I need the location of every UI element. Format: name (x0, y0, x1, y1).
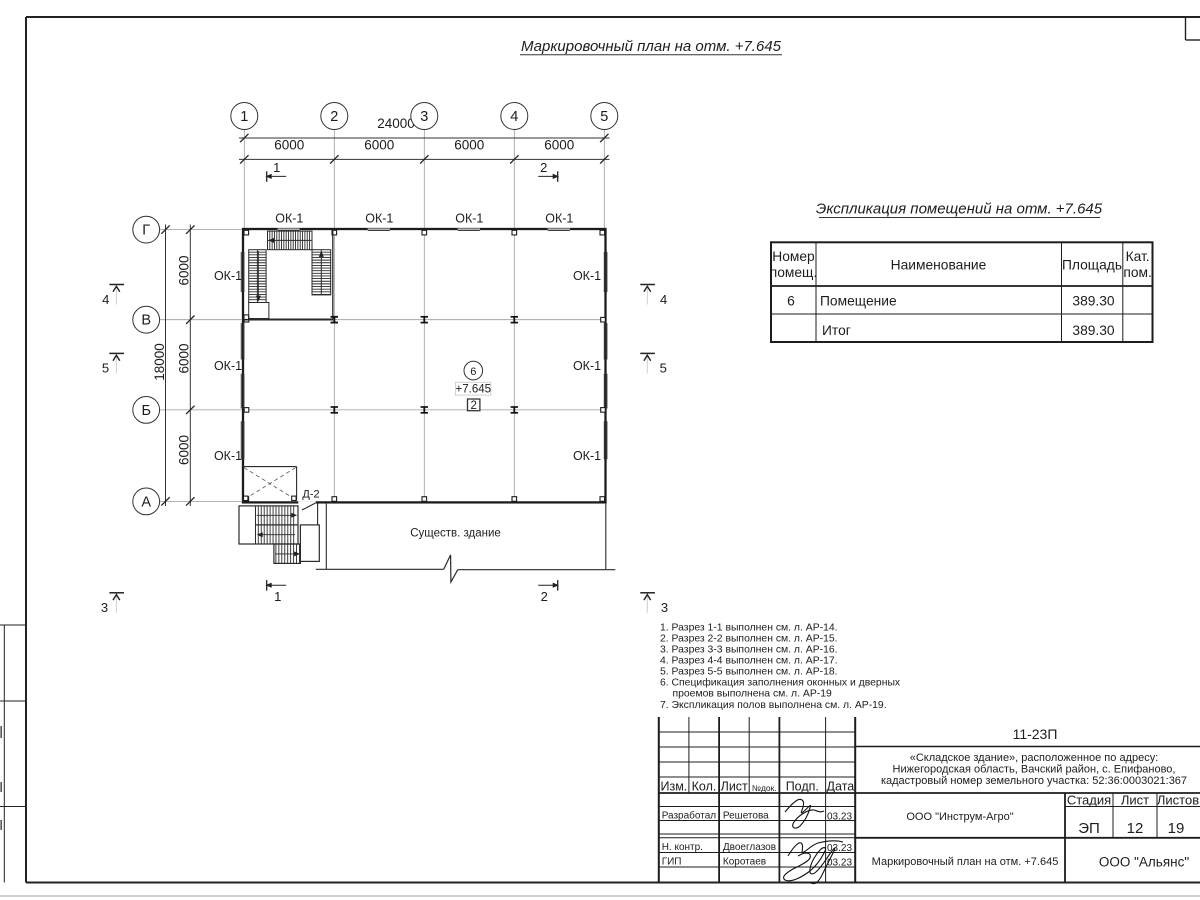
svg-text:389.30: 389.30 (1072, 294, 1115, 309)
svg-text:помещ.: помещ. (770, 265, 818, 280)
svg-text:3: 3 (420, 109, 428, 125)
svg-text:ООО "Альянс": ООО "Альянс" (1099, 855, 1189, 870)
svg-text:Нижегородская область, Вачский: Нижегородская область, Вачский район, с.… (893, 764, 1176, 776)
svg-text:19: 19 (1168, 820, 1185, 837)
svg-text:кадастровый номер земельного у: кадастровый номер земельного участка: 52… (881, 775, 1187, 787)
svg-text:6000: 6000 (274, 137, 304, 152)
svg-text:11-23П: 11-23П (1013, 726, 1058, 742)
svg-text:1: 1 (273, 160, 280, 175)
svg-text:1: 1 (274, 589, 281, 604)
svg-text:389.30: 389.30 (1072, 323, 1115, 338)
svg-text:ОК-1: ОК-1 (214, 359, 242, 373)
svg-text:5: 5 (660, 360, 667, 375)
svg-text:6000: 6000 (544, 137, 574, 152)
svg-text:Помещение: Помещение (820, 294, 897, 309)
svg-text:6000: 6000 (364, 137, 394, 152)
svg-text:6: 6 (787, 294, 795, 309)
svg-text:ОК-1: ОК-1 (455, 212, 483, 226)
svg-text:Дата: Дата (827, 780, 855, 794)
svg-text:4: 4 (510, 109, 518, 125)
svg-text:Листов: Листов (1157, 793, 1199, 808)
svg-text:4. Разрез 4-4 выполнен см. л.: 4. Разрез 4-4 выполнен см. л. АР-17. (660, 656, 838, 667)
svg-text:3: 3 (661, 600, 668, 615)
svg-text:ОК-1: ОК-1 (214, 269, 242, 283)
svg-text:ОК-1: ОК-1 (365, 212, 393, 226)
svg-text:Н. контр.: Н. контр. (662, 842, 703, 853)
svg-text:03.23: 03.23 (827, 857, 852, 868)
svg-text:1: 1 (240, 109, 248, 125)
svg-text:5: 5 (600, 109, 608, 125)
svg-text:Кат.: Кат. (1126, 249, 1150, 264)
svg-text:12: 12 (1127, 820, 1144, 837)
svg-text:Итог: Итог (822, 323, 851, 338)
svg-text:ОК-1: ОК-1 (545, 212, 573, 226)
svg-text:Двоеглазов: Двоеглазов (723, 842, 776, 853)
svg-text:ЭП: ЭП (1078, 820, 1100, 837)
svg-text:А: А (141, 494, 151, 510)
svg-text:ОК-1: ОК-1 (573, 449, 601, 463)
svg-text:Изм.: Изм. (661, 780, 688, 794)
svg-text:«Складское здание», расположен: «Складское здание», расположенное по адр… (910, 752, 1159, 764)
svg-text:2: 2 (540, 160, 547, 175)
svg-text:Г: Г (142, 223, 150, 239)
svg-text:6000: 6000 (176, 255, 191, 285)
svg-text:Коротаев: Коротаев (723, 856, 766, 867)
svg-text:5: 5 (102, 360, 109, 375)
svg-text:Кол.: Кол. (692, 780, 717, 794)
svg-text:2: 2 (470, 400, 476, 412)
svg-text:7. Экспликация полов выполнена: 7. Экспликация полов выполнена см. л. АР… (660, 700, 887, 711)
svg-text:Номер: Номер (772, 249, 815, 264)
svg-text:6000: 6000 (176, 435, 191, 465)
svg-text:2: 2 (541, 589, 548, 604)
svg-text:6. Спецификация заполнения око: 6. Спецификация заполнения оконных и две… (660, 677, 901, 689)
svg-text:4: 4 (660, 292, 667, 307)
svg-text:Подп.: Подп. (786, 780, 819, 794)
svg-text:6: 6 (470, 366, 476, 378)
svg-text:Решетова: Решетова (723, 811, 769, 822)
svg-text:Лист: Лист (721, 780, 748, 794)
svg-text:ГИП: ГИП (662, 856, 682, 867)
svg-text:4: 4 (102, 292, 109, 307)
svg-text:Наименование: Наименование (891, 258, 987, 273)
svg-text:В: В (141, 313, 151, 329)
svg-text:ОК-1: ОК-1 (275, 212, 303, 226)
svg-text:03.23: 03.23 (827, 812, 852, 823)
svg-text:Экспликация помещений на отм.: Экспликация помещений на отм. +7.645 (816, 201, 1103, 218)
svg-text:Д-2: Д-2 (302, 489, 319, 501)
svg-text:№док.: №док. (752, 783, 777, 793)
svg-text:Площадь: Площадь (1062, 258, 1122, 273)
svg-text:1. Разрез 1-1 выполнен см. л.: 1. Разрез 1-1 выполнен см. л. АР-14. (660, 623, 838, 634)
svg-text:+7.645: +7.645 (456, 384, 492, 396)
svg-text:пом.: пом. (1123, 265, 1151, 280)
svg-text:ООО "Инструм-Агро": ООО "Инструм-Агро" (906, 811, 1013, 823)
svg-text:3. Разрез 3-3 выполнен см. л.: 3. Разрез 3-3 выполнен см. л. АР-16. (660, 645, 838, 656)
svg-text:ОК-1: ОК-1 (214, 449, 242, 463)
svg-text:18000: 18000 (152, 343, 167, 381)
svg-text:6000: 6000 (176, 343, 191, 373)
svg-text:5. Разрез 5-5 выполнен см. л.: 5. Разрез 5-5 выполнен см. л. АР-18. (660, 667, 838, 678)
svg-text:Лист: Лист (1121, 793, 1149, 808)
svg-text:ОК-1: ОК-1 (573, 359, 601, 373)
svg-text:24000: 24000 (377, 116, 415, 131)
svg-text:6000: 6000 (454, 137, 484, 152)
svg-text:2. Разрез 2-2 выполнен см. л.: 2. Разрез 2-2 выполнен см. л. АР-15. (660, 634, 838, 645)
svg-text:Стадия: Стадия (1067, 793, 1111, 808)
svg-text:3: 3 (101, 600, 108, 615)
svg-text:Разработал: Разработал (662, 810, 717, 822)
svg-text:проемов выполнена см. л. АР-19: проемов выполнена см. л. АР-19 (673, 689, 832, 700)
svg-text:Маркировочный план на отм. +7.: Маркировочный план на отм. +7.645 (872, 856, 1059, 868)
svg-text:ОК-1: ОК-1 (573, 269, 601, 283)
svg-text:Б: Б (141, 403, 151, 419)
svg-text:2: 2 (330, 109, 338, 125)
svg-text:Существ. здание: Существ. здание (410, 528, 501, 540)
svg-text:Маркировочный план на отм. +7.: Маркировочный план на отм. +7.645 (521, 38, 782, 55)
